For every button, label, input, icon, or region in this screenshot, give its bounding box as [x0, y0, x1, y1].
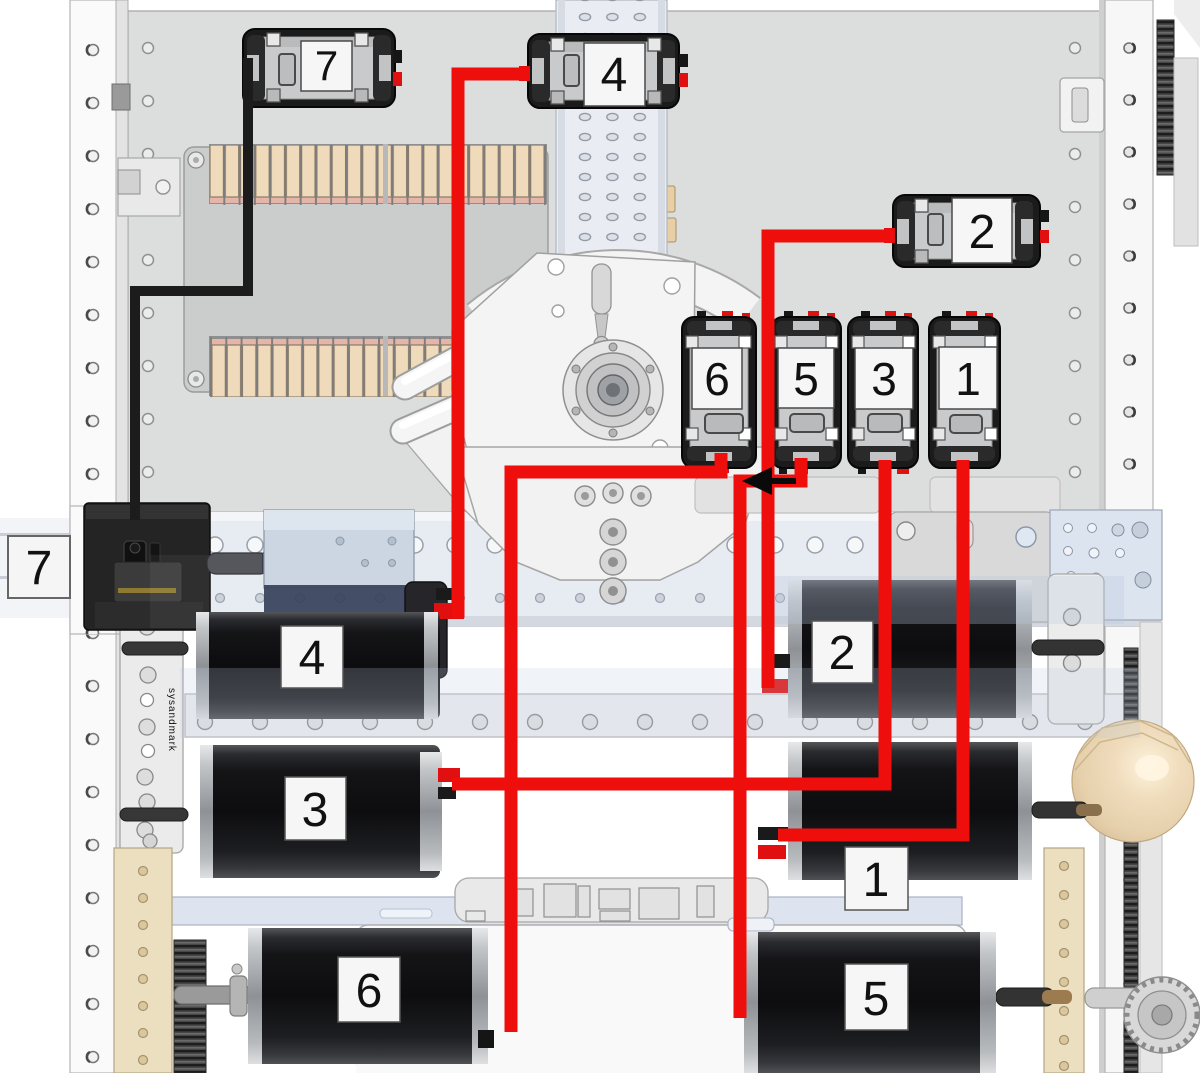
svg-text:1: 1: [863, 854, 890, 907]
svg-text:7: 7: [26, 542, 53, 595]
svg-text:2: 2: [829, 627, 856, 680]
svg-text:3: 3: [302, 784, 329, 837]
svg-text:sysandmark: sysandmark: [166, 688, 177, 752]
svg-text:2: 2: [969, 206, 996, 259]
svg-text:6: 6: [356, 965, 383, 1018]
svg-text:3: 3: [871, 353, 897, 405]
svg-text:7: 7: [315, 42, 338, 89]
svg-text:4: 4: [299, 632, 326, 685]
svg-text:1: 1: [955, 353, 981, 405]
svg-text:4: 4: [601, 49, 628, 102]
svg-text:6: 6: [704, 353, 730, 405]
svg-text:5: 5: [793, 353, 819, 405]
svg-text:5: 5: [863, 973, 890, 1026]
